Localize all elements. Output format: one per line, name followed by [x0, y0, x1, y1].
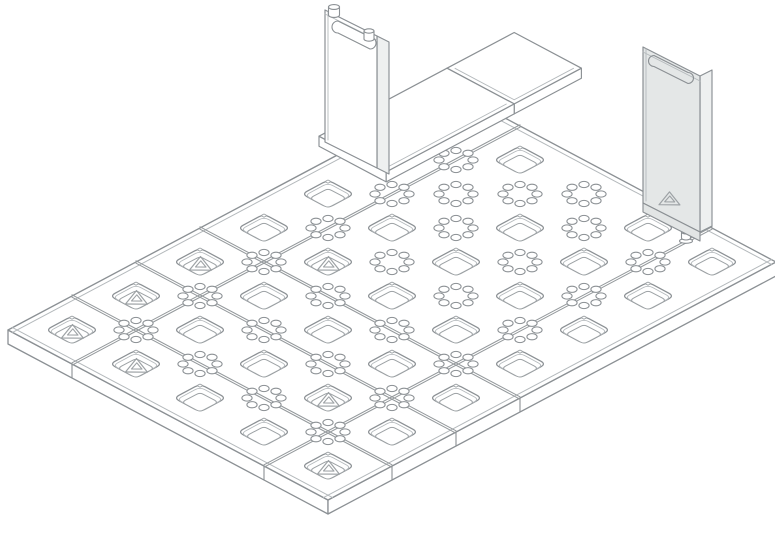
bolt-hole	[404, 191, 414, 197]
bolt-hole	[387, 181, 397, 187]
bolt-hole	[247, 334, 257, 340]
bolt-hole	[183, 286, 193, 292]
bolt-hole	[451, 370, 461, 376]
bolt-hole	[439, 286, 449, 292]
bolt-hole	[591, 184, 601, 190]
bolt-hole	[451, 283, 461, 289]
bolt-hole	[370, 191, 380, 197]
bolt-hole	[451, 215, 461, 221]
bolt-hole	[498, 191, 508, 197]
bolt-hole	[439, 184, 449, 190]
bolt-hole	[306, 293, 316, 299]
bolt-hole	[515, 336, 525, 342]
bolt-hole	[579, 234, 589, 240]
bolt-hole	[311, 286, 321, 292]
bolt-hole	[503, 184, 513, 190]
bolt-hole	[370, 259, 380, 265]
pocket-corner-notch	[197, 384, 202, 387]
pocket-corner-notch	[453, 316, 458, 319]
locating-pin	[364, 29, 374, 41]
bolt-hole	[195, 283, 205, 289]
bolt-hole	[463, 184, 473, 190]
pocket-corner-notch	[709, 248, 714, 251]
bolt-hole	[375, 198, 385, 204]
bolt-hole	[148, 327, 158, 333]
bolt-hole	[276, 395, 286, 401]
bolt-hole	[131, 336, 141, 342]
bolt-hole	[591, 218, 601, 224]
bolt-hole	[340, 293, 350, 299]
bolt-hole	[323, 283, 333, 289]
bolt-hole	[515, 200, 525, 206]
pocket-corner-notch	[197, 316, 202, 319]
locating-pin	[329, 5, 340, 18]
bolt-hole	[119, 334, 129, 340]
bolt-hole	[183, 368, 193, 374]
bolt-hole	[562, 191, 572, 197]
pocket-corner-notch	[325, 180, 330, 183]
pocket-corner-notch	[389, 418, 394, 421]
bolt-hole	[527, 198, 537, 204]
bolt-hole	[242, 327, 252, 333]
bolt-hole	[375, 402, 385, 408]
pocket-corner-notch	[197, 248, 202, 251]
bolt-hole	[463, 198, 473, 204]
bolt-hole	[527, 334, 537, 340]
pocket-corner-notch	[261, 214, 266, 217]
bolt-hole	[399, 252, 409, 258]
bolt-hole	[335, 436, 345, 442]
bolt-hole	[591, 198, 601, 204]
bolt-hole	[515, 181, 525, 187]
bolt-hole	[532, 191, 542, 197]
bolt-hole	[439, 164, 449, 170]
bolt-hole	[439, 368, 449, 374]
pocket-corner-notch	[453, 248, 458, 251]
bolt-hole	[335, 422, 345, 428]
bolt-hole	[119, 320, 129, 326]
bolt-hole	[404, 259, 414, 265]
bolt-hole	[375, 334, 385, 340]
bolt-hole	[259, 249, 269, 255]
bolt-hole	[631, 266, 641, 272]
bolt-hole	[527, 266, 537, 272]
bolt-hole	[451, 181, 461, 187]
bolt-hole	[579, 283, 589, 289]
bolt-hole	[271, 388, 281, 394]
bolt-hole	[387, 317, 397, 323]
bolt-hole	[503, 266, 513, 272]
pocket-corner-notch	[581, 316, 586, 319]
bolt-hole	[271, 320, 281, 326]
bolt-hole	[335, 218, 345, 224]
bolt-hole	[631, 252, 641, 258]
pocket-corner-notch	[261, 418, 266, 421]
bolt-hole	[562, 293, 572, 299]
bolt-hole	[375, 252, 385, 258]
bolt-hole	[463, 354, 473, 360]
bolt-hole	[399, 402, 409, 408]
bolt-hole	[643, 249, 653, 255]
side-panel	[643, 47, 712, 243]
bolt-hole	[311, 354, 321, 360]
bolt-hole	[404, 327, 414, 333]
bolt-hole	[259, 268, 269, 274]
bolt-hole	[259, 404, 269, 410]
bolt-hole	[143, 320, 153, 326]
bolt-hole	[387, 385, 397, 391]
bolt-hole	[212, 293, 222, 299]
bolt-hole	[323, 370, 333, 376]
bolt-hole	[183, 300, 193, 306]
bolt-hole	[247, 402, 257, 408]
bolt-hole	[503, 320, 513, 326]
bolt-hole	[591, 232, 601, 238]
pocket-corner-notch	[69, 316, 74, 319]
pocket-corner-notch	[645, 282, 650, 285]
bolt-hole	[404, 395, 414, 401]
bolt-hole	[562, 225, 572, 231]
bolt-hole	[375, 184, 385, 190]
bolt-hole	[451, 234, 461, 240]
bolt-hole	[247, 388, 257, 394]
bolt-hole	[212, 361, 222, 367]
bolt-hole	[515, 249, 525, 255]
bolt-hole	[515, 268, 525, 274]
bolt-hole	[399, 334, 409, 340]
bolt-hole	[311, 368, 321, 374]
bolt-hole	[463, 368, 473, 374]
bolt-hole	[596, 293, 606, 299]
bolt-hole	[532, 327, 542, 333]
bolt-hole	[655, 252, 665, 258]
bolt-hole	[579, 200, 589, 206]
bolt-hole	[387, 249, 397, 255]
bolt-hole	[451, 351, 461, 357]
bolt-hole	[335, 300, 345, 306]
bolt-hole	[306, 429, 316, 435]
bolt-hole	[468, 293, 478, 299]
pocket-corner-notch	[325, 316, 330, 319]
bolt-hole	[276, 327, 286, 333]
bolt-hole	[468, 361, 478, 367]
bolt-hole	[399, 198, 409, 204]
pocket-corner-notch	[389, 282, 394, 285]
bolt-hole	[183, 354, 193, 360]
bolt-hole	[468, 157, 478, 163]
bolt-hole	[439, 232, 449, 238]
bolt-hole	[375, 388, 385, 394]
pocket-corner-notch	[517, 146, 522, 149]
bolt-hole	[370, 395, 380, 401]
bolt-hole	[463, 164, 473, 170]
pocket-corner-notch	[517, 214, 522, 217]
bolt-hole	[579, 215, 589, 221]
bolt-hole	[463, 218, 473, 224]
pocket-corner-notch	[133, 282, 138, 285]
bolt-hole	[567, 184, 577, 190]
bolt-hole	[468, 191, 478, 197]
bolt-hole	[567, 300, 577, 306]
bolt-hole	[655, 266, 665, 272]
bolt-hole	[323, 215, 333, 221]
bolt-hole	[271, 402, 281, 408]
pocket-corner-notch	[133, 350, 138, 353]
bolt-hole	[311, 300, 321, 306]
isometric-technical-illustration	[0, 0, 775, 545]
bolt-hole	[451, 147, 461, 153]
bolt-hole	[463, 286, 473, 292]
bolt-hole	[143, 334, 153, 340]
bolt-hole	[259, 385, 269, 391]
bolt-hole	[242, 395, 252, 401]
bolt-hole	[131, 317, 141, 323]
bolt-hole	[195, 370, 205, 376]
pocket-corner-notch	[325, 384, 330, 387]
bolt-hole	[434, 361, 444, 367]
pocket-corner-notch	[453, 384, 458, 387]
bolt-hole	[579, 181, 589, 187]
bolt-hole	[503, 252, 513, 258]
bolt-hole	[387, 404, 397, 410]
bolt-hole	[195, 351, 205, 357]
pocket-corner-notch	[581, 248, 586, 251]
bolt-hole	[567, 232, 577, 238]
bolt-hole	[311, 436, 321, 442]
bolt-hole	[532, 259, 542, 265]
bolt-hole	[335, 354, 345, 360]
bolt-hole	[271, 334, 281, 340]
bolt-hole	[335, 232, 345, 238]
bolt-hole	[567, 286, 577, 292]
panel-edge-fin	[700, 70, 712, 232]
bolt-hole	[503, 198, 513, 204]
bolt-hole	[503, 334, 513, 340]
bolt-hole	[259, 317, 269, 323]
bolt-hole	[643, 268, 653, 274]
bolt-hole	[451, 166, 461, 172]
bolt-hole	[434, 293, 444, 299]
pocket-corner-notch	[325, 452, 330, 455]
illustration-stage	[0, 0, 775, 545]
bolt-hole	[567, 198, 577, 204]
bolt-hole	[323, 419, 333, 425]
pocket-corner-notch	[389, 350, 394, 353]
bolt-hole	[463, 232, 473, 238]
bracket-upright-fin	[377, 36, 389, 174]
bolt-hole	[207, 354, 217, 360]
bolt-hole	[311, 218, 321, 224]
bolt-hole	[463, 150, 473, 156]
bolt-hole	[247, 252, 257, 258]
bolt-hole	[340, 225, 350, 231]
bolt-hole	[399, 184, 409, 190]
bolt-hole	[399, 388, 409, 394]
bolt-hole	[434, 225, 444, 231]
pocket-corner-notch	[517, 350, 522, 353]
bolt-hole	[387, 336, 397, 342]
bolt-hole	[247, 320, 257, 326]
bolt-hole	[242, 259, 252, 265]
bolt-hole	[515, 317, 525, 323]
bolt-hole	[178, 293, 188, 299]
bolt-hole	[591, 300, 601, 306]
bolt-hole	[626, 259, 636, 265]
bolt-hole	[306, 361, 316, 367]
bolt-hole	[439, 198, 449, 204]
bolt-hole	[451, 200, 461, 206]
bolt-hole	[178, 361, 188, 367]
bolt-hole	[340, 429, 350, 435]
bolt-hole	[311, 232, 321, 238]
bolt-hole	[399, 266, 409, 272]
bolt-hole	[527, 184, 537, 190]
bolt-hole	[439, 300, 449, 306]
bolt-hole	[207, 286, 217, 292]
bolt-hole	[591, 286, 601, 292]
bolt-hole	[335, 286, 345, 292]
bolt-hole	[567, 218, 577, 224]
bolt-hole	[323, 234, 333, 240]
bolt-hole	[271, 252, 281, 258]
bolt-hole	[276, 259, 286, 265]
pocket-corner-notch	[517, 282, 522, 285]
bolt-hole	[439, 354, 449, 360]
bolt-hole	[207, 368, 217, 374]
locating-pin-top	[329, 5, 340, 10]
bolt-hole	[463, 300, 473, 306]
bolt-hole	[468, 225, 478, 231]
bolt-hole	[451, 302, 461, 308]
bolt-hole	[207, 300, 217, 306]
bolt-hole	[579, 302, 589, 308]
locating-pin-top	[364, 29, 374, 33]
pocket-corner-notch	[261, 350, 266, 353]
bolt-hole	[434, 157, 444, 163]
bolt-hole	[323, 302, 333, 308]
pocket-corner-notch	[325, 248, 330, 251]
bolt-hole	[340, 361, 350, 367]
bolt-hole	[527, 320, 537, 326]
bolt-hole	[271, 266, 281, 272]
bolt-hole	[370, 327, 380, 333]
bolt-hole	[306, 225, 316, 231]
bolt-hole	[114, 327, 124, 333]
bolt-hole	[195, 302, 205, 308]
bolt-hole	[660, 259, 670, 265]
bolt-hole	[439, 218, 449, 224]
bolt-hole	[311, 422, 321, 428]
bolt-hole	[323, 351, 333, 357]
bolt-hole	[434, 191, 444, 197]
bolt-hole	[399, 320, 409, 326]
bolt-hole	[259, 336, 269, 342]
bolt-hole	[596, 191, 606, 197]
bolt-hole	[375, 266, 385, 272]
bolt-hole	[247, 266, 257, 272]
bolt-hole	[498, 259, 508, 265]
pocket-corner-notch	[261, 282, 266, 285]
bolt-hole	[323, 438, 333, 444]
pocket-corner-notch	[389, 214, 394, 217]
bolt-hole	[335, 368, 345, 374]
bolt-hole	[498, 327, 508, 333]
bolt-hole	[387, 200, 397, 206]
bolt-hole	[375, 320, 385, 326]
bolt-hole	[596, 225, 606, 231]
bolt-hole	[387, 268, 397, 274]
bolt-hole	[527, 252, 537, 258]
